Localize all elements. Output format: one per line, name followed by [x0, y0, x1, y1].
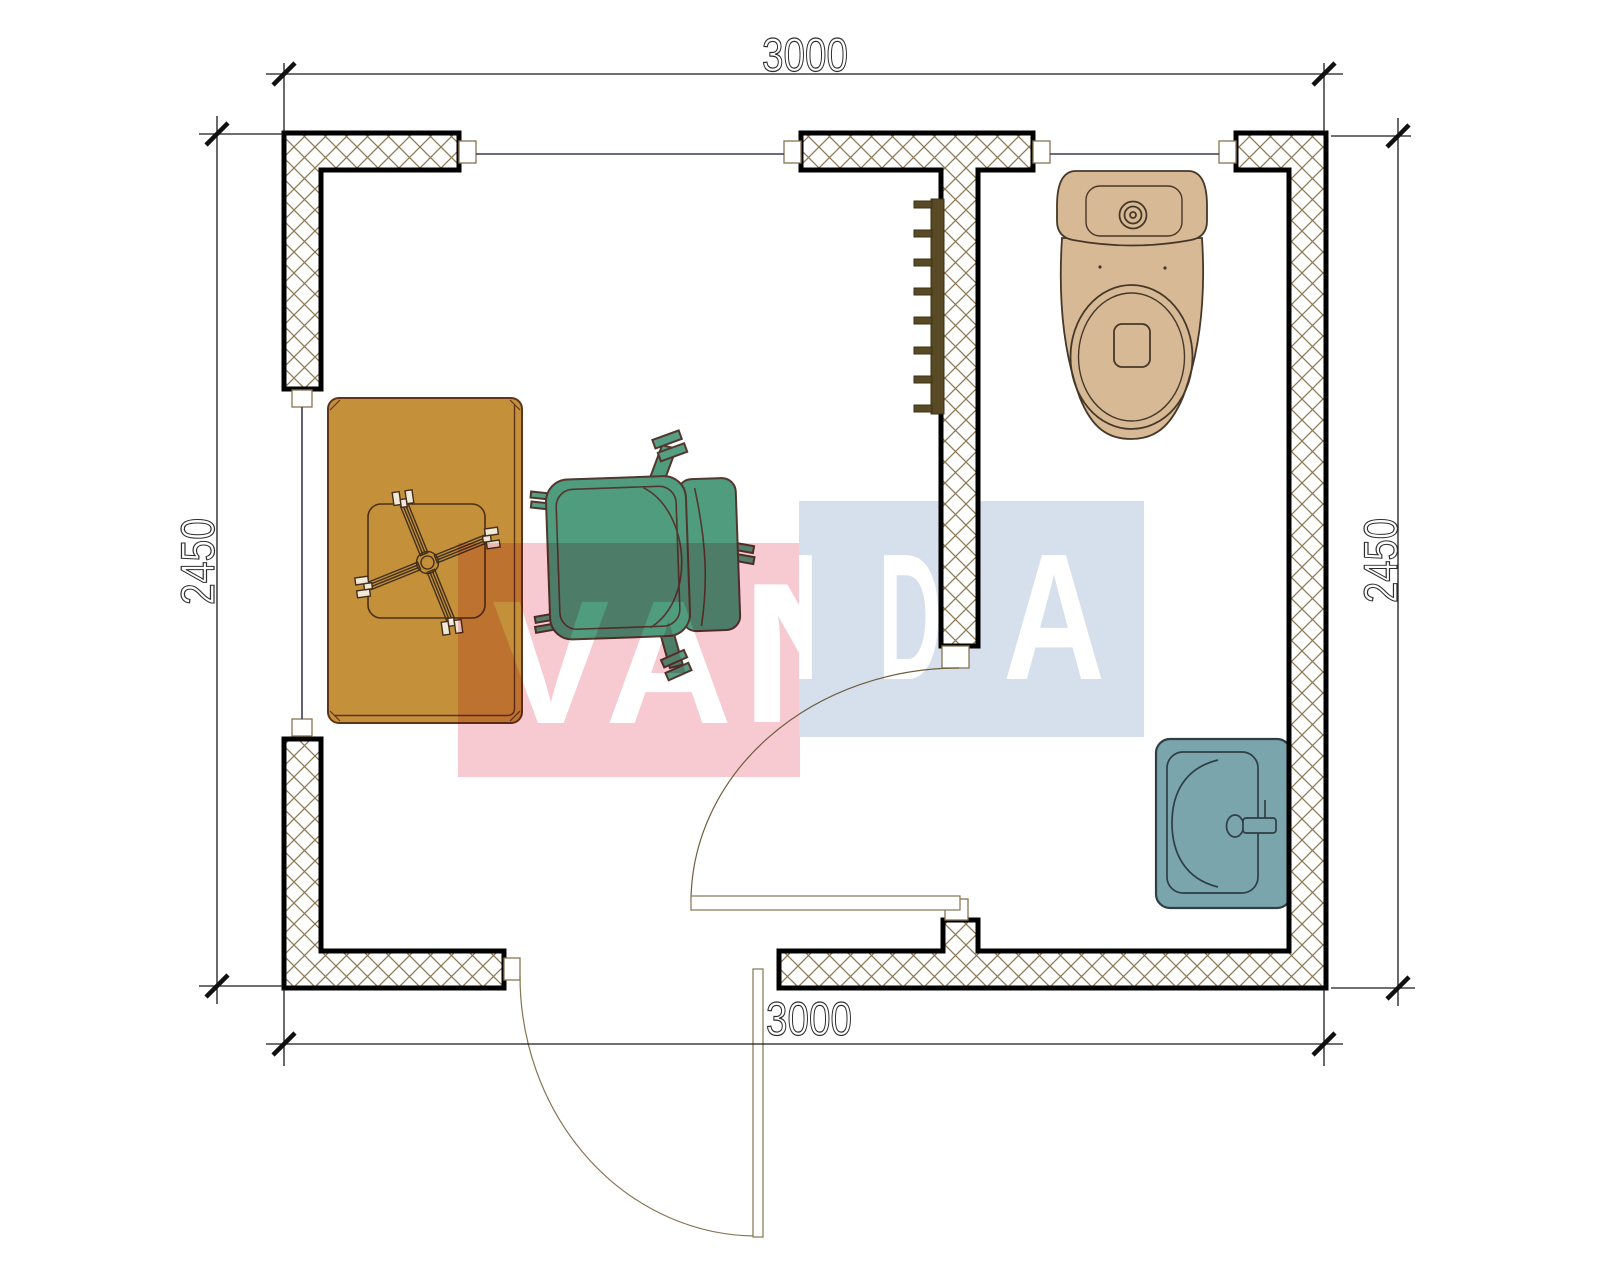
svg-text:3000: 3000	[766, 992, 852, 1045]
svg-text:3000: 3000	[762, 28, 848, 81]
svg-text:2450: 2450	[1354, 518, 1407, 603]
svg-text:2450: 2450	[171, 518, 224, 605]
